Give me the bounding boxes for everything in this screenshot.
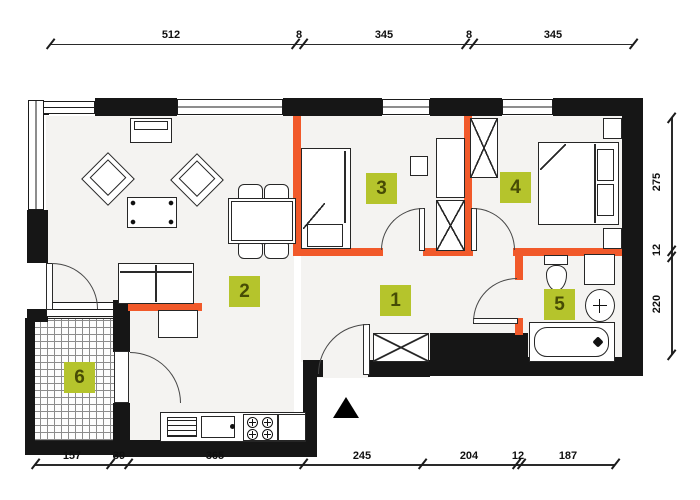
dining-chair	[264, 243, 289, 259]
tv-cabinet-shelf	[134, 121, 168, 130]
wall-balcony-left	[25, 318, 35, 455]
room-label-1: 1	[380, 285, 411, 316]
room-label-6: 6	[64, 362, 95, 393]
single-bed-foot-cabinet	[307, 224, 343, 247]
armchair-seat	[90, 159, 127, 196]
single-bed-edge-line	[344, 151, 346, 223]
floor-plan-canvas: 1 2 3 4 5 6 512 8 345 8 345 275 12 220 1…	[0, 0, 700, 500]
room-number: 3	[376, 178, 387, 200]
accent-wall-hall-a	[293, 248, 383, 256]
wall-balcony-column-lower	[113, 403, 130, 443]
bedside-table	[410, 156, 428, 176]
side-table	[158, 310, 198, 338]
wardrobe-crossed	[436, 200, 465, 251]
entrance-arrow-icon	[333, 397, 359, 418]
armchair-seat	[179, 160, 216, 197]
kitchen-faucet-dot	[230, 424, 235, 429]
double-bed-fold	[540, 144, 566, 170]
wall-right	[622, 98, 643, 376]
wall-hall-bottom	[368, 360, 430, 377]
room-number: 5	[554, 294, 565, 316]
stove-burner	[247, 429, 258, 440]
dimension-line-right	[671, 118, 673, 355]
wall-top-3	[430, 98, 502, 116]
double-bed-head-line	[594, 144, 596, 223]
room-label-4: 4	[500, 172, 531, 203]
washing-machine	[584, 254, 615, 285]
window-top-living	[177, 99, 283, 115]
sofa-divider-line	[155, 265, 157, 302]
dim-label-bottom: 187	[548, 450, 588, 462]
dim-label-bottom: 245	[342, 450, 382, 462]
dim-label-right: 220	[651, 284, 663, 324]
wall-left-1	[27, 210, 48, 263]
room-label-2: 2	[229, 276, 260, 307]
room-number: 4	[510, 177, 521, 199]
pillow	[597, 184, 614, 216]
pillow	[597, 149, 614, 181]
toilet-tank	[544, 255, 568, 265]
dim-label-top: 8	[449, 29, 489, 41]
dim-label-top: 512	[151, 29, 191, 41]
accent-wall-bath-left-upper	[515, 254, 523, 280]
dimension-line-bottom	[35, 464, 615, 466]
kitchen-worktop	[278, 414, 306, 441]
dim-label-bottom: 39	[99, 450, 139, 462]
coffee-table	[127, 197, 177, 228]
kitchen-dish-rack	[167, 417, 197, 437]
window-top-room3	[382, 99, 430, 115]
stove-burner	[262, 429, 273, 440]
room-number: 2	[239, 281, 250, 303]
stove-burner	[247, 417, 258, 428]
wall-top-1	[95, 98, 177, 116]
room-label-3: 3	[366, 173, 397, 204]
dim-label-right: 275	[651, 162, 663, 202]
window-left	[28, 100, 44, 210]
window-top-room4	[502, 99, 553, 115]
stove-burner	[262, 417, 273, 428]
hall-wardrobe	[373, 333, 429, 362]
dim-label-bottom: 12	[498, 450, 538, 462]
wall-top-2	[283, 98, 382, 116]
wardrobe-crossed	[470, 118, 498, 178]
dining-table-inner	[231, 201, 293, 241]
dimension-line-top	[50, 44, 633, 46]
dim-label-top: 8	[279, 29, 319, 41]
dim-label-top: 345	[533, 29, 573, 41]
nightstand	[603, 228, 622, 249]
dim-label-right: 12	[651, 230, 663, 270]
wardrobe	[436, 138, 465, 198]
room-number: 1	[390, 290, 401, 312]
dim-label-bottom: 365	[195, 450, 235, 462]
room-label-5: 5	[544, 289, 575, 320]
dim-label-top: 345	[364, 29, 404, 41]
dim-label-bottom: 157	[52, 450, 92, 462]
dining-chair	[238, 243, 263, 259]
door-leaf-balcony	[114, 351, 129, 403]
dim-label-bottom: 204	[449, 450, 489, 462]
bathroom-sink	[585, 289, 615, 322]
room-number: 6	[74, 367, 85, 389]
nightstand	[603, 118, 622, 139]
